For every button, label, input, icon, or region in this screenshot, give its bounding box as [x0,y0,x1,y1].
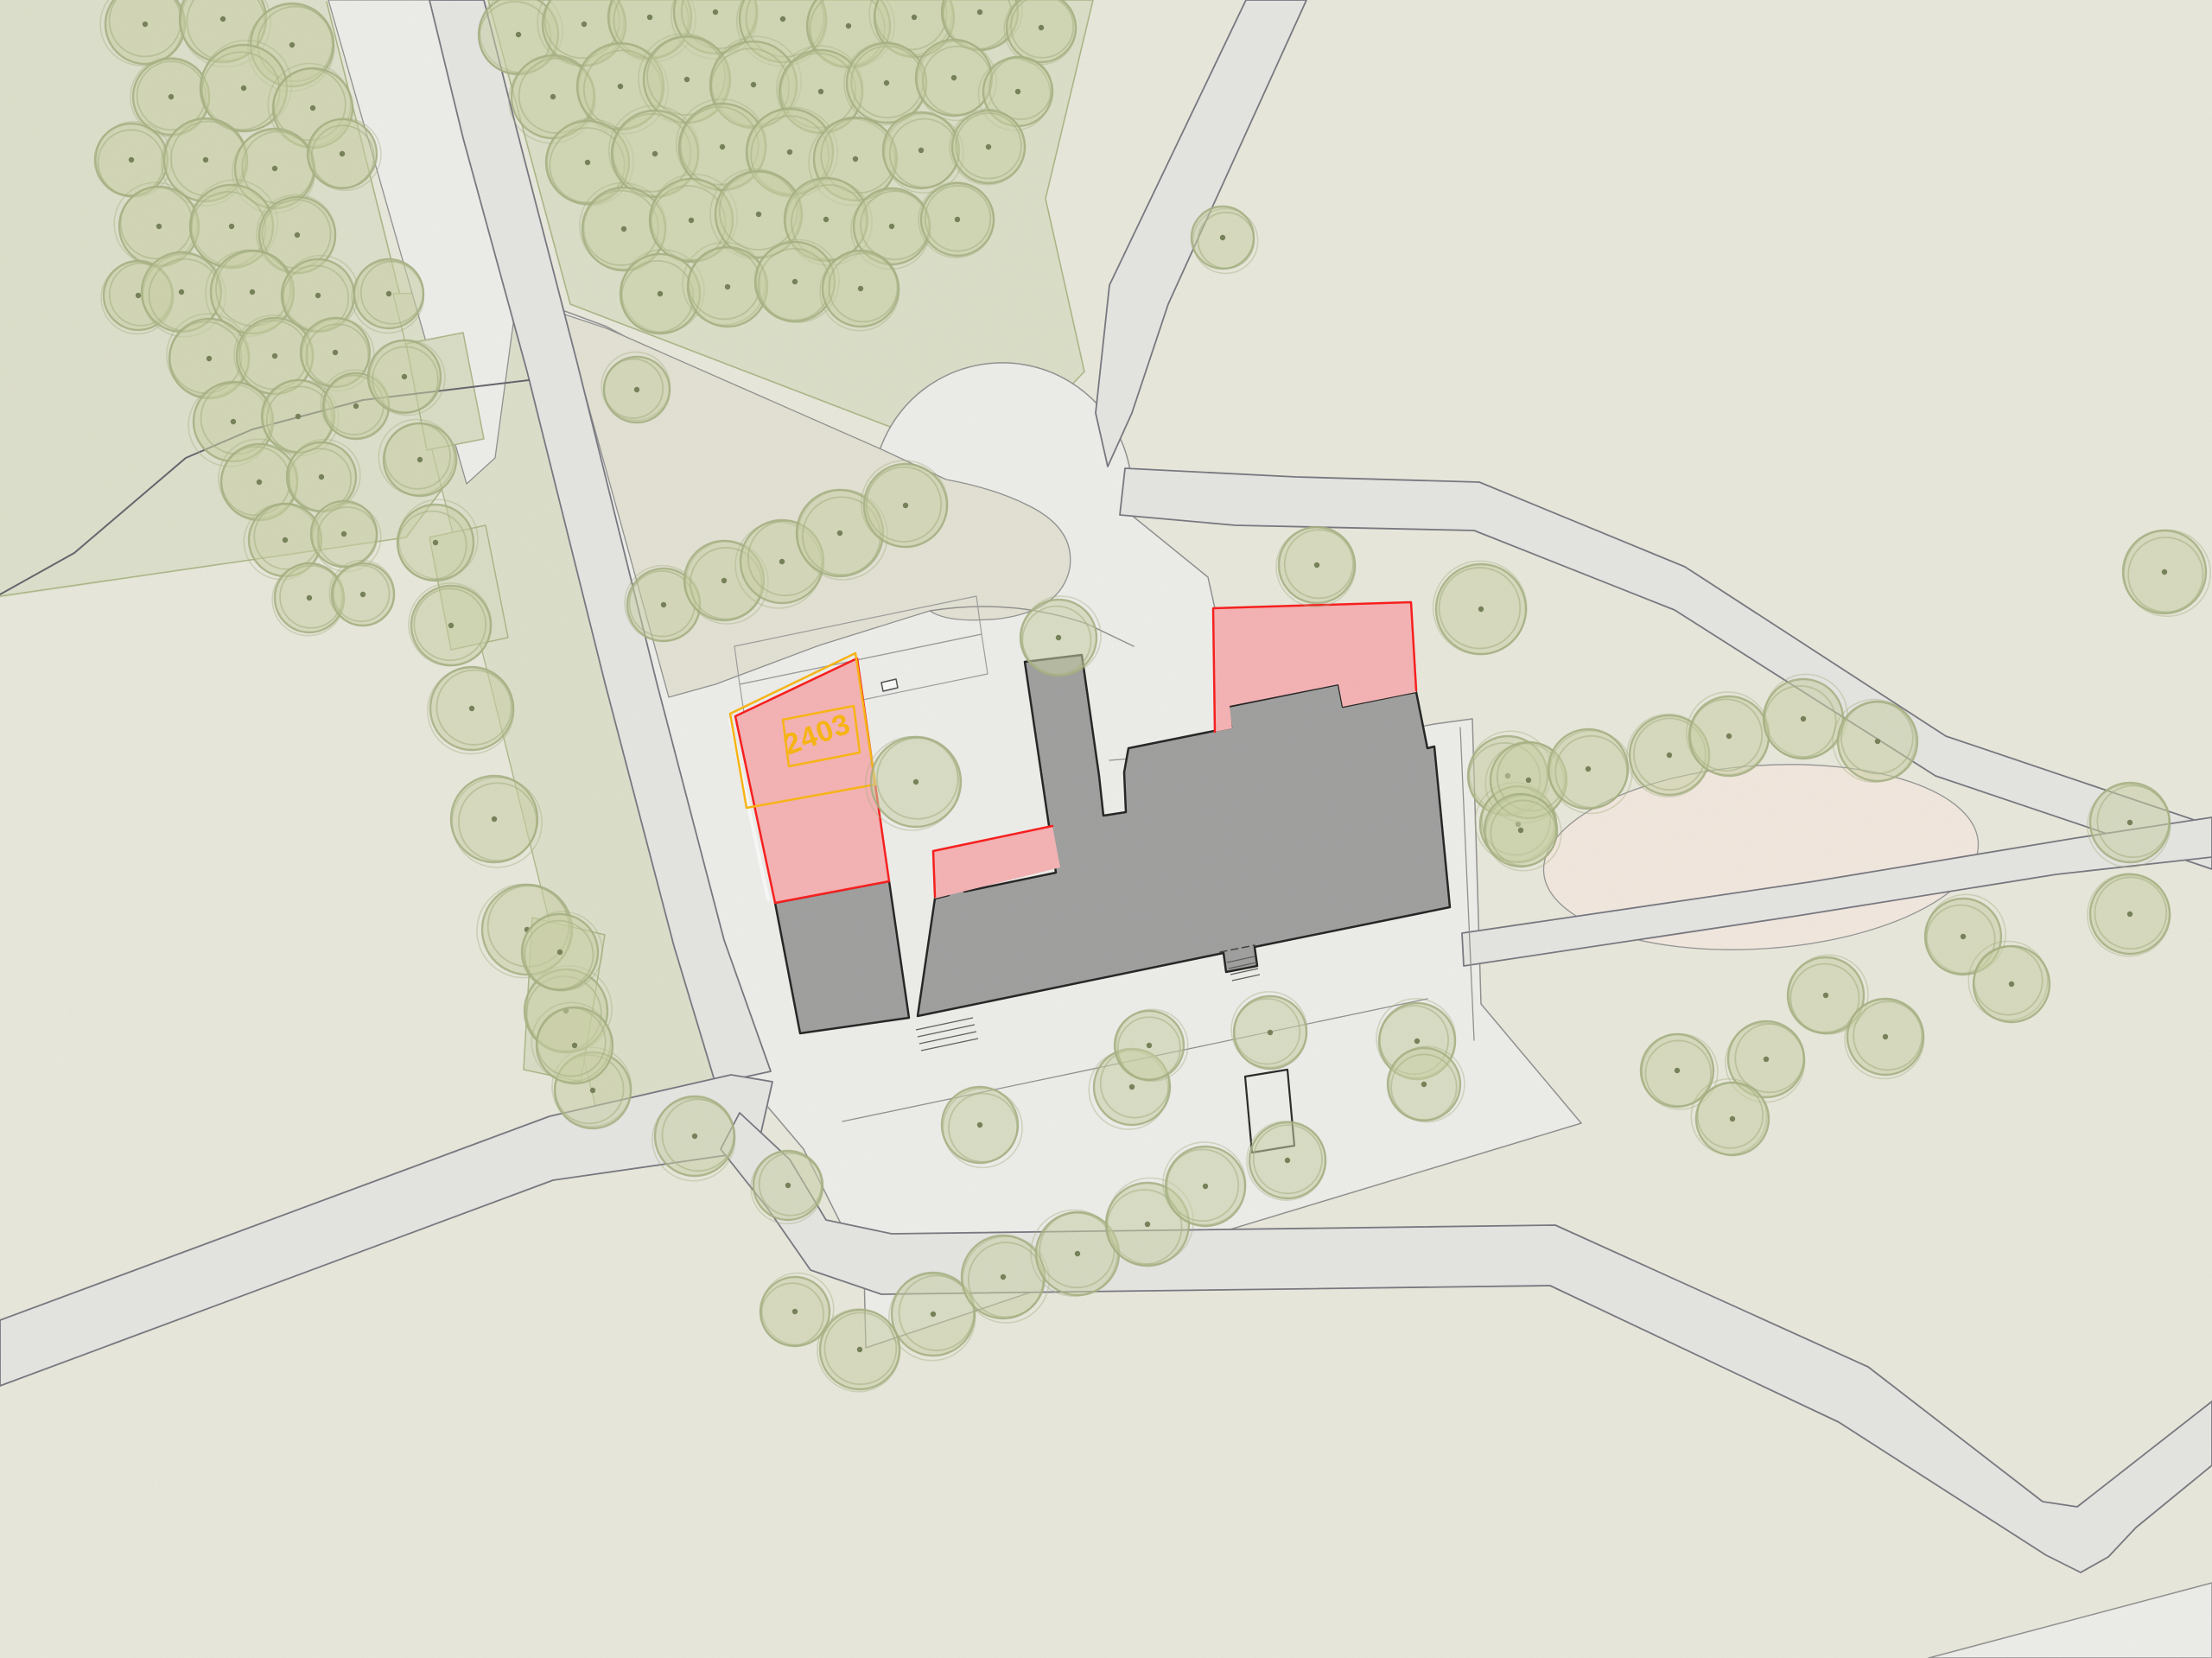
tree [1231,992,1306,1069]
tree [1388,1046,1465,1121]
tree [1484,794,1561,871]
tree [1833,700,1917,783]
tree [2123,530,2210,616]
tree [866,737,961,830]
tree [861,461,948,547]
tree [817,1309,900,1392]
tree [1687,692,1770,776]
tree [1004,0,1076,65]
tree [1276,527,1356,607]
building-left-wing [775,881,909,1033]
tree [918,182,994,257]
tree [883,112,963,193]
tree [1115,1009,1188,1081]
tree [308,118,381,190]
tree [329,561,394,626]
tree [368,340,445,415]
tree [751,1151,823,1223]
tree [601,352,670,422]
tree [1247,1121,1326,1201]
tree [1163,1142,1246,1226]
tree [820,251,899,331]
tree [352,259,423,333]
tree [1020,596,1101,676]
tree [2088,783,2171,867]
tree [2088,873,2171,956]
site-plan-viewport: 2403 [0,0,2212,1658]
tree [652,1096,735,1181]
tree [409,583,492,666]
tree [1845,999,1924,1079]
tree [950,109,1025,184]
tree [522,912,602,991]
site-plan-canvas[interactable]: 2403 [0,0,2212,1658]
tree [1433,561,1527,654]
tree [428,667,514,754]
